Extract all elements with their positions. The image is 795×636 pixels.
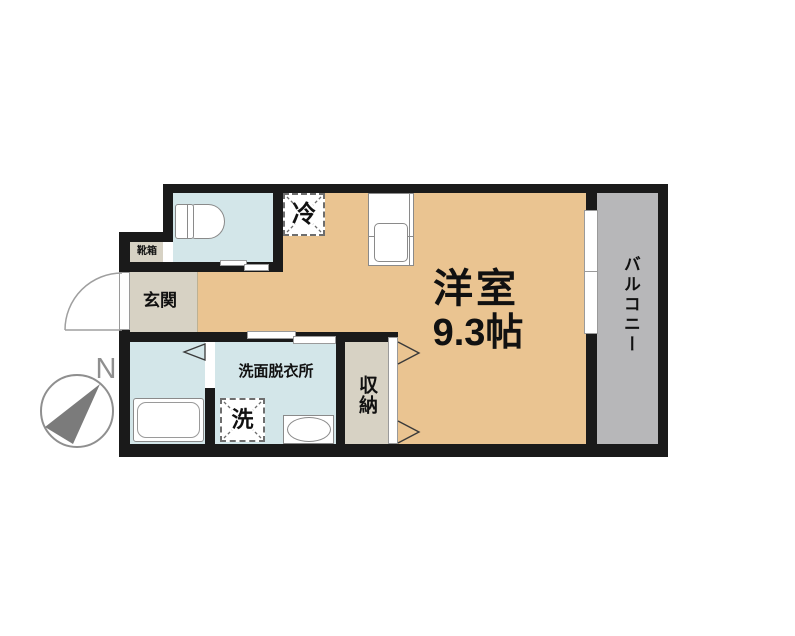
- balcony-label: バルコニー: [621, 255, 639, 355]
- main-room-size: 9.3帖: [433, 314, 524, 354]
- entrance-label: 玄関: [143, 292, 177, 310]
- washroom-label: 洗面脱衣所: [238, 364, 313, 380]
- main-room-label: 洋室: [433, 268, 519, 310]
- plan-symbols: [0, 0, 795, 636]
- shoe-box-label: 靴箱: [137, 247, 157, 258]
- refrigerator-corner-dashes: [287, 197, 321, 232]
- bathroom-door-arrow-icon: [184, 344, 205, 360]
- floor-plan: 冷 洗: [0, 0, 795, 636]
- compass-north-label: N: [96, 354, 117, 384]
- storage-door-arrow-icon: [398, 342, 419, 364]
- entrance-door-arc-icon: [65, 273, 122, 330]
- storage-label: 収納: [356, 375, 376, 415]
- storage-door-arrow-icon-2: [398, 421, 419, 443]
- washer-corner-dashes: [224, 402, 261, 438]
- compass-icon: [41, 375, 113, 447]
